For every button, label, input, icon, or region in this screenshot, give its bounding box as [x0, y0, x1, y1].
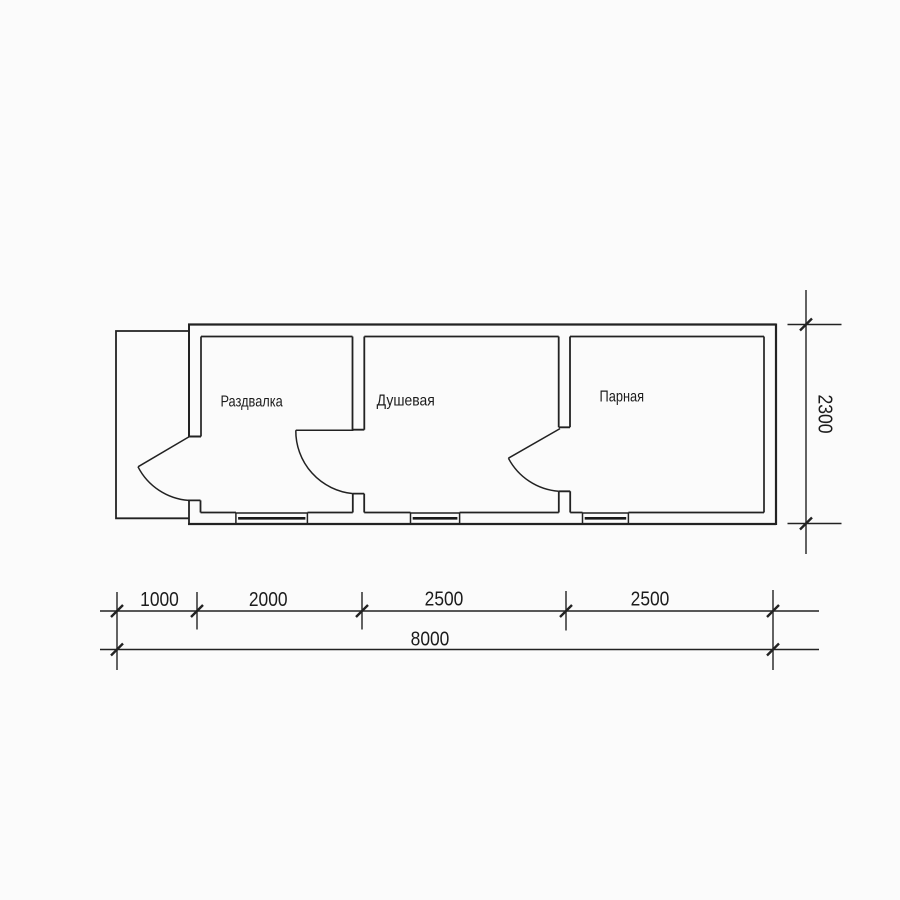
svg-text:2300: 2300 — [814, 394, 836, 433]
svg-text:1000: 1000 — [140, 588, 179, 610]
svg-text:Душевая: Душевая — [377, 391, 435, 409]
svg-text:8000: 8000 — [411, 628, 450, 650]
svg-text:2500: 2500 — [425, 588, 464, 610]
svg-text:2500: 2500 — [631, 588, 670, 610]
svg-text:Раздвалка: Раздвалка — [220, 393, 283, 411]
svg-text:Парная: Парная — [600, 388, 645, 406]
svg-text:2000: 2000 — [249, 588, 288, 610]
